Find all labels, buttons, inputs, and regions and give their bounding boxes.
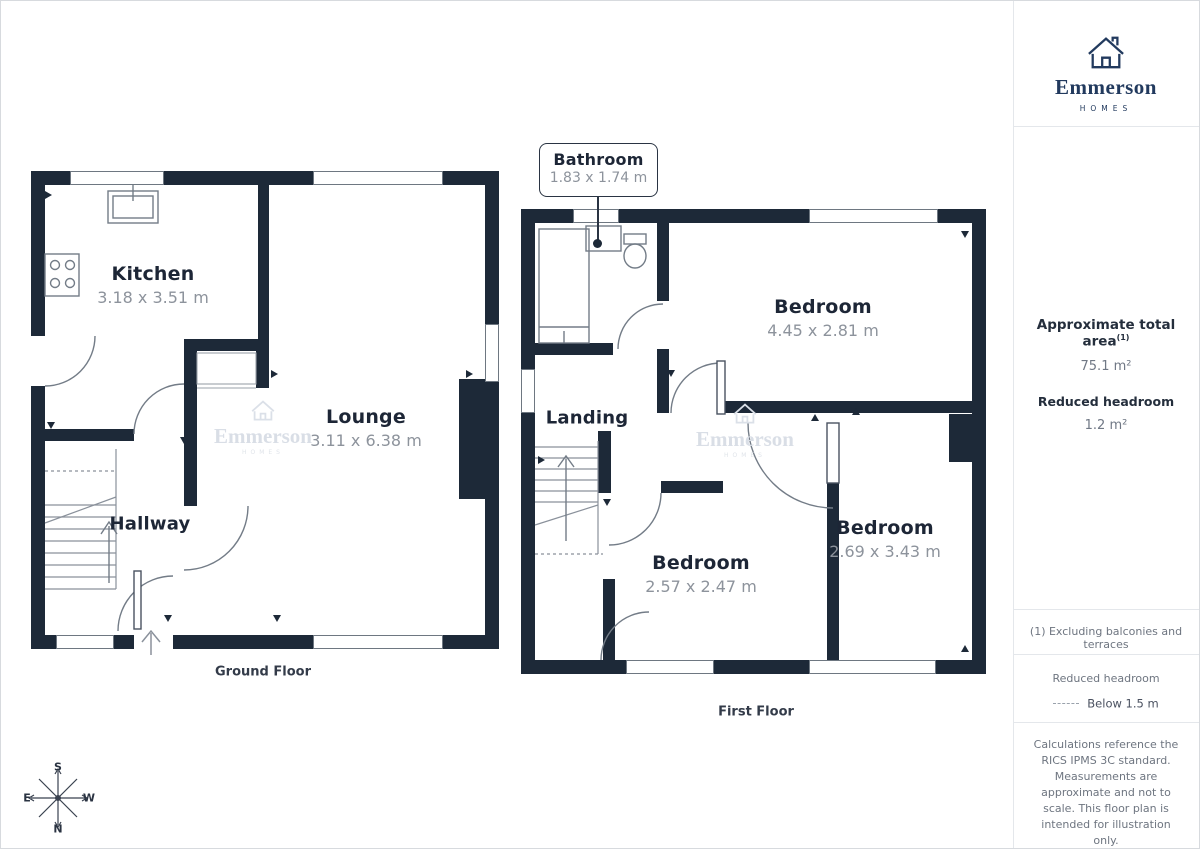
cupboard: [197, 353, 256, 388]
brand-logo: Emmerson HOMES: [1013, 33, 1199, 113]
area-summary: Approximate total area(1) 75.1 m² Reduce…: [1013, 317, 1199, 433]
room-label-lounge: Lounge 3.11 x 6.38 m: [310, 406, 422, 450]
area-value: 75.1 m²: [1013, 359, 1199, 374]
legend-title: Reduced headroom: [1013, 672, 1199, 685]
room-name: Bedroom: [645, 552, 757, 574]
door-arc: [118, 576, 173, 631]
room-dims: 4.45 x 2.81 m: [767, 321, 879, 340]
floorplan-page: Emmerson HOMES Emmerson HOMES Kitchen 3.…: [0, 0, 1200, 849]
house-icon: [1083, 33, 1129, 71]
floorplan-first: [521, 209, 986, 674]
compass-west: W: [83, 792, 95, 805]
room-dims: 3.11 x 6.38 m: [310, 431, 422, 450]
door-arc: [618, 304, 663, 349]
callout-anchor-dot: [593, 239, 602, 248]
area-title-text: Approximate total area: [1037, 317, 1175, 350]
compass-east: E: [23, 792, 31, 805]
room-name: Landing: [546, 408, 629, 429]
room-dims: 2.57 x 2.47 m: [645, 577, 757, 596]
legend-row: Below 1.5 m: [1013, 693, 1199, 712]
dashed-line-sample: [1053, 703, 1079, 704]
sidebar-divider: [1014, 722, 1199, 723]
headroom-value: 1.2 m²: [1013, 418, 1199, 433]
room-name: Kitchen: [97, 263, 209, 285]
entry-arrow: [142, 631, 160, 655]
headroom-legend: Reduced headroom Below 1.5 m: [1013, 672, 1199, 712]
stairs: [45, 449, 116, 589]
sidebar-divider: [1014, 126, 1199, 127]
brand-tagline: HOMES: [1013, 104, 1199, 113]
disclaimer-text: Calculations reference the RICS IPMS 3C …: [1028, 737, 1184, 849]
stairs: [535, 441, 603, 554]
room-name: Bathroom: [540, 150, 657, 169]
compass-south: S: [54, 761, 62, 774]
toilet-icon: [624, 234, 646, 268]
door-arc: [134, 384, 184, 434]
sink-icon: [586, 226, 621, 251]
footnote-text: (1) Excluding balconies and terraces: [1013, 625, 1199, 651]
room-label-hallway: Hallway: [110, 514, 191, 535]
floorplan-ground: [31, 171, 499, 649]
room-dims: 1.83 x 1.74 m: [540, 170, 657, 186]
room-name: Lounge: [310, 406, 422, 428]
area-title-footnote-marker: (1): [1117, 333, 1130, 342]
room-label-kitchen: Kitchen 3.18 x 3.51 m: [97, 263, 209, 307]
room-label-bedroom-right: Bedroom 2.69 x 3.43 m: [829, 517, 941, 561]
sidebar-divider: [1014, 654, 1199, 655]
room-name: Bedroom: [829, 517, 941, 539]
room-label-landing: Landing: [546, 408, 629, 429]
door-arc: [601, 612, 649, 660]
shower-icon: [539, 229, 589, 343]
room-dims: 3.18 x 3.51 m: [97, 288, 209, 307]
sidebar-divider: [1014, 609, 1199, 610]
door-arc: [748, 423, 833, 508]
room-label-bedroom-middle: Bedroom 2.57 x 2.47 m: [645, 552, 757, 596]
door-arc: [609, 493, 661, 545]
stove-icon: [45, 254, 79, 296]
compass-north: N: [53, 823, 62, 836]
area-title: Approximate total area(1): [1013, 317, 1199, 350]
door-arc: [184, 506, 248, 570]
legend-label: Below 1.5 m: [1087, 697, 1158, 711]
room-dims: 2.69 x 3.43 m: [829, 542, 941, 561]
first-floor-linework: [521, 209, 986, 674]
sink-icon: [108, 185, 158, 223]
footnote: (1) Excluding balconies and terraces: [1013, 625, 1199, 651]
room-label-bedroom-top: Bedroom 4.45 x 2.81 m: [767, 296, 879, 340]
door-arc: [671, 363, 721, 413]
bathroom-callout: Bathroom 1.83 x 1.74 m: [539, 143, 658, 197]
door-arc: [45, 336, 95, 386]
callout-leader-line: [597, 197, 599, 241]
room-name: Bedroom: [767, 296, 879, 318]
disclaimer-block: Calculations reference the RICS IPMS 3C …: [1013, 737, 1199, 849]
door-leaf: [717, 361, 725, 414]
door-leaf: [827, 423, 839, 483]
room-name: Hallway: [110, 514, 191, 535]
caption-first-floor: First Floor: [718, 705, 794, 720]
caption-ground-floor: Ground Floor: [215, 665, 311, 680]
brand-name: Emmerson: [1013, 75, 1199, 100]
ground-floor-linework: [31, 171, 499, 649]
door-leaf: [134, 571, 141, 629]
headroom-title: Reduced headroom: [1013, 394, 1199, 409]
